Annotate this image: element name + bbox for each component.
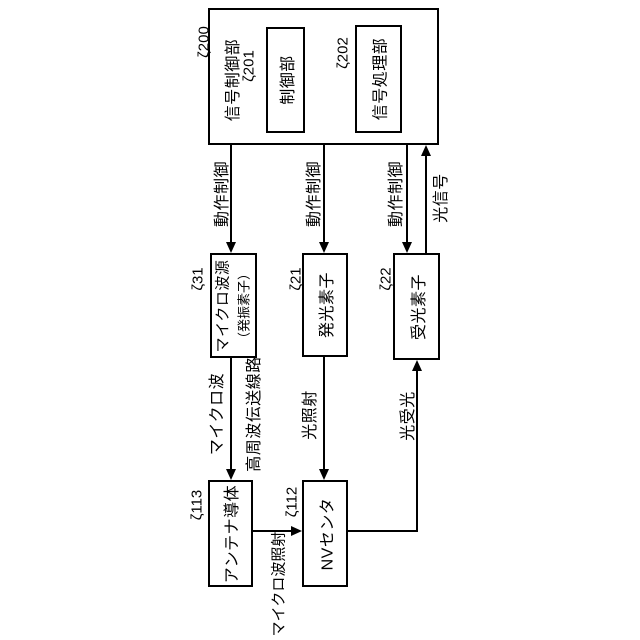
label-operation-control-2: 動作制御 xyxy=(300,161,324,227)
arrow-microwave-line xyxy=(230,358,232,470)
label-light-reception: 光受光 xyxy=(394,391,418,441)
arrow-light-irradiation-head xyxy=(319,469,329,480)
ref-label-200: ζ200 xyxy=(196,26,213,58)
box-microwave-source: マイクロ波源 （発振素子） xyxy=(210,253,257,358)
ref-label-22: ζ22 xyxy=(378,267,395,290)
box-light-emitting-element: 発光素子 xyxy=(302,253,348,357)
label-microwave-source-line1: マイクロ波源 xyxy=(213,259,234,352)
ref-label-201: ζ201 xyxy=(241,50,258,82)
label-operation-control-3: 動作制御 xyxy=(382,161,406,227)
label-signal-control-unit: 信号制御部 xyxy=(219,39,243,122)
patent-block-diagram: 信号制御部 ζ200 制御部 ζ201 信号処理部 ζ202 マイクロ波源 （発… xyxy=(0,0,640,640)
ref-label-21: ζ21 xyxy=(288,267,305,290)
arrow-microwave-irradiation-head xyxy=(291,526,302,536)
label-microwave-irradiation: マイクロ波照射 xyxy=(268,532,289,637)
arrow-light-irradiation-line xyxy=(323,357,325,470)
arrow-operation-control-1-head xyxy=(226,242,236,253)
label-light-receiving-element: 受光素子 xyxy=(405,273,429,339)
label-antenna-conductor: アンテナ導体 xyxy=(219,484,243,582)
label-signal-processing-unit: 信号処理部 xyxy=(367,38,391,121)
connector-light-reception-horizontal xyxy=(348,530,418,532)
label-high-frequency-transmission-line: 高周波伝送線路 xyxy=(240,356,264,472)
arrow-optical-signal-head xyxy=(421,145,431,156)
arrow-microwave-head xyxy=(226,469,236,480)
label-microwave-source-line2: （発振素子） xyxy=(234,259,255,352)
box-control-unit: 制御部 xyxy=(266,27,305,133)
label-microwave-source: マイクロ波源 （発振素子） xyxy=(213,259,255,352)
ref-label-31: ζ31 xyxy=(190,267,207,290)
label-nv-center: NVセンタ xyxy=(313,497,337,570)
ref-label-202: ζ202 xyxy=(335,37,352,69)
label-optical-signal: 光信号 xyxy=(427,173,451,223)
arrow-operation-control-3-line xyxy=(406,145,408,243)
box-signal-processing-unit: 信号処理部 xyxy=(355,25,402,133)
arrow-operation-control-2-head xyxy=(319,242,329,253)
label-operation-control-1: 動作制御 xyxy=(208,161,232,227)
label-microwave: マイクロ波 xyxy=(203,373,227,455)
box-nv-center: NVセンタ xyxy=(302,480,348,587)
ref-label-112: ζ112 xyxy=(284,487,301,518)
arrow-operation-control-3-head xyxy=(402,242,412,253)
label-light-emitting-element: 発光素子 xyxy=(313,272,337,338)
label-light-irradiation: 光照射 xyxy=(296,390,320,440)
ref-label-113: ζ113 xyxy=(189,490,206,521)
box-light-receiving-element: 受光素子 xyxy=(393,253,440,360)
box-antenna-conductor: アンテナ導体 xyxy=(208,480,253,587)
arrow-light-reception-head xyxy=(412,360,422,371)
label-control-unit: 制御部 xyxy=(274,55,298,105)
